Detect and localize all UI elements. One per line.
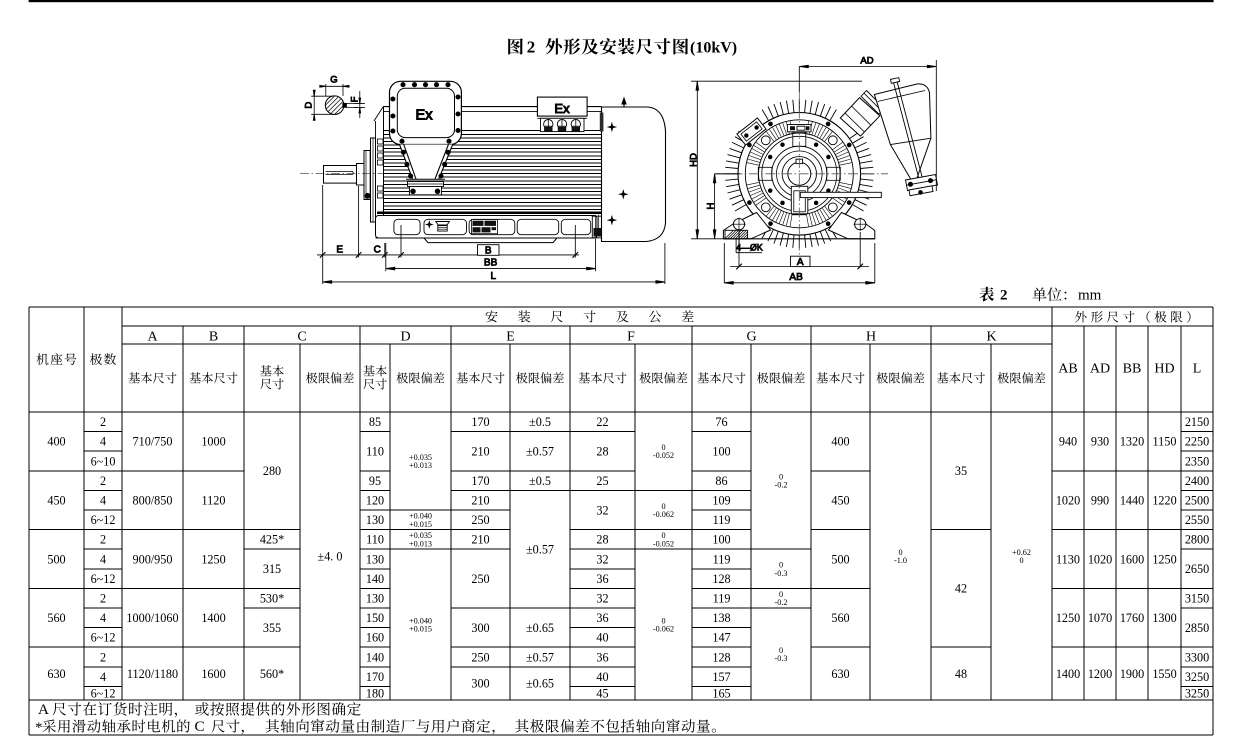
svg-text:4: 4 xyxy=(100,552,106,566)
svg-text:560*: 560* xyxy=(260,667,284,681)
svg-text:H: H xyxy=(866,330,876,345)
svg-text:130: 130 xyxy=(366,592,384,606)
svg-text:*: * xyxy=(35,719,43,736)
svg-text:1760: 1760 xyxy=(1120,611,1144,625)
svg-text:BB: BB xyxy=(484,258,498,269)
svg-text:1250: 1250 xyxy=(1152,552,1176,566)
svg-text:165: 165 xyxy=(712,687,730,701)
svg-text:119: 119 xyxy=(713,513,731,527)
svg-text:32: 32 xyxy=(596,503,608,517)
svg-text:C: C xyxy=(195,718,205,735)
svg-text:1250: 1250 xyxy=(201,552,225,566)
svg-text:0: 0 xyxy=(1019,556,1023,565)
svg-text:500: 500 xyxy=(831,552,849,566)
svg-text:630: 630 xyxy=(47,667,65,681)
svg-text:210: 210 xyxy=(471,445,489,459)
svg-text:E: E xyxy=(336,244,343,255)
svg-text:1020: 1020 xyxy=(1088,552,1112,566)
svg-text:1550: 1550 xyxy=(1152,667,1176,681)
svg-text:Ex: Ex xyxy=(554,101,570,116)
svg-text:300: 300 xyxy=(471,621,489,635)
svg-text:+0.013: +0.013 xyxy=(409,461,432,470)
svg-text:1900: 1900 xyxy=(1120,667,1144,681)
svg-text:140: 140 xyxy=(366,650,384,664)
svg-text:1120: 1120 xyxy=(202,494,226,508)
svg-text:1400: 1400 xyxy=(201,611,225,625)
svg-text:mm: mm xyxy=(1078,288,1102,304)
svg-text:110: 110 xyxy=(366,533,384,547)
svg-text:AD: AD xyxy=(1090,362,1110,377)
svg-text:28: 28 xyxy=(596,445,608,459)
svg-text:2800: 2800 xyxy=(1185,533,1209,547)
svg-text:-0.052: -0.052 xyxy=(653,539,674,548)
svg-text:+0.013: +0.013 xyxy=(409,539,432,548)
svg-text:76: 76 xyxy=(715,415,727,429)
svg-text:1600: 1600 xyxy=(201,667,225,681)
svg-text:3250: 3250 xyxy=(1185,687,1209,701)
svg-text:2150: 2150 xyxy=(1185,415,1209,429)
svg-text:400: 400 xyxy=(47,435,65,449)
svg-text:630: 630 xyxy=(831,667,849,681)
svg-text:HD: HD xyxy=(1154,362,1174,377)
svg-text:3250: 3250 xyxy=(1185,670,1209,684)
svg-text:157: 157 xyxy=(712,670,730,684)
svg-text:F: F xyxy=(350,96,361,102)
svg-text:40: 40 xyxy=(596,670,608,684)
svg-text:L: L xyxy=(491,271,497,282)
svg-text:120: 120 xyxy=(366,494,384,508)
svg-text:900/950: 900/950 xyxy=(133,552,173,566)
svg-text:355: 355 xyxy=(263,621,281,635)
svg-text:119: 119 xyxy=(713,552,731,566)
svg-text:E: E xyxy=(506,330,515,345)
svg-text:-0.062: -0.062 xyxy=(653,625,674,634)
svg-text:3300: 3300 xyxy=(1185,650,1209,664)
svg-text:A: A xyxy=(147,330,158,345)
svg-text:(10kV): (10kV) xyxy=(690,40,737,57)
svg-text:100: 100 xyxy=(712,445,730,459)
svg-text:250: 250 xyxy=(471,572,489,586)
svg-text:BB: BB xyxy=(1123,362,1142,377)
svg-text:109: 109 xyxy=(712,494,730,508)
svg-text:2350: 2350 xyxy=(1185,454,1209,468)
svg-text:48: 48 xyxy=(955,667,967,681)
svg-text:1150: 1150 xyxy=(1153,435,1177,449)
svg-text:110: 110 xyxy=(366,445,384,459)
svg-text:45: 45 xyxy=(596,687,608,701)
svg-text:450: 450 xyxy=(47,494,65,508)
svg-text:1200: 1200 xyxy=(1088,667,1112,681)
svg-text:1130: 1130 xyxy=(1056,552,1080,566)
svg-text:560: 560 xyxy=(47,611,65,625)
svg-text:40: 40 xyxy=(596,631,608,645)
svg-text:930: 930 xyxy=(1091,435,1109,449)
svg-text:±0.5: ±0.5 xyxy=(529,474,551,488)
svg-text:4: 4 xyxy=(100,670,106,684)
svg-text:1000/1060: 1000/1060 xyxy=(126,611,178,625)
svg-text:32: 32 xyxy=(596,552,608,566)
svg-text:1300: 1300 xyxy=(1152,611,1176,625)
svg-text:1020: 1020 xyxy=(1056,494,1080,508)
svg-text:150: 150 xyxy=(366,611,384,625)
svg-text:2: 2 xyxy=(100,592,106,606)
svg-text:130: 130 xyxy=(366,552,384,566)
svg-text:1220: 1220 xyxy=(1152,494,1176,508)
svg-text:D: D xyxy=(304,102,315,109)
svg-text:530*: 530* xyxy=(260,592,284,606)
svg-text:6~12: 6~12 xyxy=(91,631,116,645)
svg-text:2650: 2650 xyxy=(1185,562,1209,576)
svg-text:±0.65: ±0.65 xyxy=(526,677,554,691)
svg-text:-1.0: -1.0 xyxy=(894,556,907,565)
svg-text:36: 36 xyxy=(596,572,608,586)
svg-text:±0.65: ±0.65 xyxy=(526,621,554,635)
svg-text:-0.052: -0.052 xyxy=(653,451,674,460)
svg-text:250: 250 xyxy=(471,650,489,664)
svg-text:86: 86 xyxy=(715,474,727,488)
svg-text:K: K xyxy=(986,330,996,345)
svg-text:2: 2 xyxy=(1000,288,1008,304)
svg-text:2: 2 xyxy=(527,38,536,57)
svg-text:500: 500 xyxy=(47,552,65,566)
svg-text:-0.3: -0.3 xyxy=(775,569,788,578)
svg-text:42: 42 xyxy=(955,582,967,596)
svg-text:450: 450 xyxy=(831,494,849,508)
svg-text:32: 32 xyxy=(596,592,608,606)
svg-text:4: 4 xyxy=(100,611,106,625)
svg-text:D: D xyxy=(400,330,410,345)
svg-text:95: 95 xyxy=(369,474,381,488)
svg-text:6~12: 6~12 xyxy=(91,513,116,527)
svg-text:3150: 3150 xyxy=(1185,592,1209,606)
svg-text:A: A xyxy=(38,701,49,718)
svg-text:250: 250 xyxy=(471,513,489,527)
svg-text:1120/1180: 1120/1180 xyxy=(127,667,178,681)
svg-text:6~10: 6~10 xyxy=(91,454,116,468)
svg-text:170: 170 xyxy=(471,415,489,429)
svg-text:2850: 2850 xyxy=(1185,621,1209,635)
svg-text:280: 280 xyxy=(263,464,281,478)
svg-text:H: H xyxy=(706,202,717,209)
svg-text:36: 36 xyxy=(596,611,608,625)
svg-text:2400: 2400 xyxy=(1185,474,1209,488)
svg-text:±0.57: ±0.57 xyxy=(526,543,554,557)
svg-text:35: 35 xyxy=(955,464,967,478)
svg-text:±0.57: ±0.57 xyxy=(526,445,554,459)
svg-text:AB: AB xyxy=(1058,362,1077,377)
svg-text:1440: 1440 xyxy=(1120,494,1144,508)
svg-text:1600: 1600 xyxy=(1120,552,1144,566)
svg-text:36: 36 xyxy=(596,650,608,664)
svg-text:990: 990 xyxy=(1091,494,1109,508)
svg-text:170: 170 xyxy=(471,474,489,488)
svg-text:4: 4 xyxy=(100,494,106,508)
svg-text:2500: 2500 xyxy=(1185,494,1209,508)
svg-text:119: 119 xyxy=(713,592,731,606)
svg-text:315: 315 xyxy=(263,562,281,576)
svg-text:2: 2 xyxy=(100,533,106,547)
svg-text:2: 2 xyxy=(100,474,106,488)
svg-text:140: 140 xyxy=(366,572,384,586)
svg-text:±4. 0: ±4. 0 xyxy=(318,549,343,563)
svg-text:-0.062: -0.062 xyxy=(653,510,674,519)
svg-text:940: 940 xyxy=(1059,435,1077,449)
svg-text:1320: 1320 xyxy=(1120,435,1144,449)
svg-text:130: 130 xyxy=(366,513,384,527)
svg-text:Ex: Ex xyxy=(416,108,434,124)
svg-text:+0.015: +0.015 xyxy=(409,625,432,634)
svg-text:4: 4 xyxy=(100,435,106,449)
svg-text:4—ØK: 4—ØK xyxy=(736,243,763,253)
svg-text:180: 180 xyxy=(366,687,384,701)
svg-text:400: 400 xyxy=(831,435,849,449)
svg-text:±0.5: ±0.5 xyxy=(529,415,551,429)
svg-text:22: 22 xyxy=(596,415,608,429)
svg-text:425*: 425* xyxy=(260,533,284,547)
svg-text:G: G xyxy=(746,330,756,345)
svg-text:85: 85 xyxy=(369,415,381,429)
svg-text:128: 128 xyxy=(712,572,730,586)
svg-text:100: 100 xyxy=(712,533,730,547)
svg-text:AB: AB xyxy=(789,272,803,283)
svg-text:±0.57: ±0.57 xyxy=(526,650,554,664)
svg-text:A: A xyxy=(797,257,804,268)
svg-text:210: 210 xyxy=(471,494,489,508)
svg-text:1070: 1070 xyxy=(1088,611,1112,625)
svg-text:6~12: 6~12 xyxy=(91,572,116,586)
svg-text:1400: 1400 xyxy=(1056,667,1080,681)
svg-text:B: B xyxy=(209,330,218,345)
svg-text:210: 210 xyxy=(471,533,489,547)
svg-text:2: 2 xyxy=(100,650,106,664)
svg-text:-0.2: -0.2 xyxy=(775,481,788,490)
svg-text:6~12: 6~12 xyxy=(91,687,116,701)
svg-text:160: 160 xyxy=(366,631,384,645)
svg-text:2250: 2250 xyxy=(1185,435,1209,449)
svg-text:2: 2 xyxy=(100,415,106,429)
svg-text:128: 128 xyxy=(712,650,730,664)
svg-text:L: L xyxy=(1193,362,1202,377)
svg-text:B: B xyxy=(485,245,492,256)
svg-text:2550: 2550 xyxy=(1185,513,1209,527)
svg-text:1000: 1000 xyxy=(201,435,225,449)
svg-text:710/750: 710/750 xyxy=(133,435,173,449)
svg-text:AD: AD xyxy=(860,56,873,67)
svg-text:C: C xyxy=(374,244,381,255)
svg-text:28: 28 xyxy=(596,533,608,547)
svg-text:138: 138 xyxy=(712,611,730,625)
svg-text:1250: 1250 xyxy=(1056,611,1080,625)
svg-text:560: 560 xyxy=(831,611,849,625)
svg-text:-0.3: -0.3 xyxy=(775,654,788,663)
svg-text:G: G xyxy=(330,75,337,86)
svg-text:-0.2: -0.2 xyxy=(775,598,788,607)
svg-text:147: 147 xyxy=(712,631,730,645)
svg-text:170: 170 xyxy=(366,670,384,684)
svg-text:+0.015: +0.015 xyxy=(409,520,432,529)
svg-text:F: F xyxy=(627,330,635,345)
svg-text:C: C xyxy=(297,330,306,345)
svg-text:HD: HD xyxy=(689,153,700,167)
svg-text:300: 300 xyxy=(471,677,489,691)
svg-text:25: 25 xyxy=(596,474,608,488)
svg-text:800/850: 800/850 xyxy=(133,494,173,508)
